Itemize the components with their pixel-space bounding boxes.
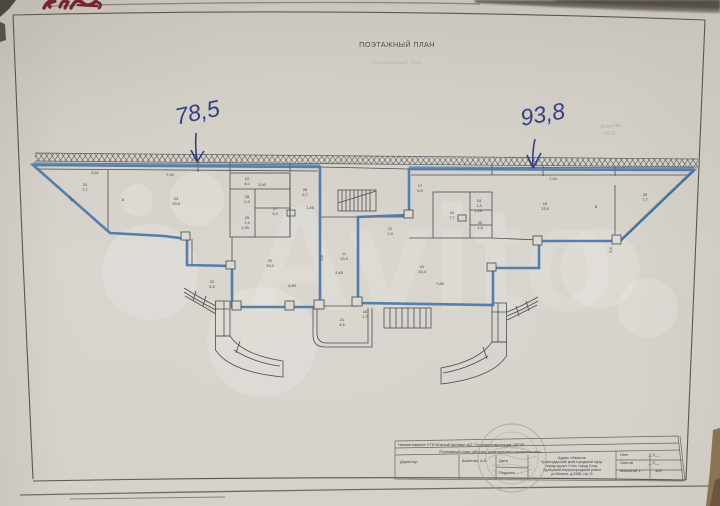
svg-text:1,4: 1,4 <box>477 225 483 230</box>
svg-text:13,9: 13,9 <box>172 201 181 206</box>
svg-text:5,9: 5,9 <box>417 188 423 193</box>
svg-text:Директор: Директор <box>400 459 418 464</box>
svg-text:100: 100 <box>655 468 662 473</box>
svg-text:1,39: 1,39 <box>241 225 250 230</box>
svg-text:1,3: 1,3 <box>244 199 250 204</box>
svg-text:Avito: Avito <box>245 174 614 342</box>
svg-text:5,8: 5,8 <box>319 254 324 260</box>
svg-text:Лист: Лист <box>620 452 629 457</box>
svg-text:19,2: 19,2 <box>266 263 275 268</box>
svg-text:2 (цокольный) этаж: 2 (цокольный) этаж <box>372 59 422 66</box>
svg-text:__3__: __3__ <box>647 452 660 457</box>
svg-text:Этаж №к: Этаж №к <box>600 123 622 130</box>
svg-text:01-11: 01-11 <box>604 130 617 137</box>
svg-text:3,3: 3,3 <box>272 211 278 216</box>
svg-text:7,34: 7,34 <box>549 176 558 181</box>
svg-text:2,49: 2,49 <box>335 270 344 275</box>
svg-text:__3__: __3__ <box>647 460 660 465</box>
svg-text:1,9: 1,9 <box>387 231 393 236</box>
svg-text:7,7: 7,7 <box>642 197 648 202</box>
svg-text:13,3: 13,3 <box>340 256 349 261</box>
svg-text:Наименование УТИ Южный филиал: Наименование УТИ Южный филиал АО "Госинв… <box>398 442 525 447</box>
svg-text:Калетник А.В.: Калетник А.В. <box>462 458 488 463</box>
svg-text:4,90: 4,90 <box>288 283 297 288</box>
svg-text:7,34: 7,34 <box>166 172 175 177</box>
svg-text:ПОЭТАЖНЫЙ ПЛАН: ПОЭТАЖНЫЙ ПЛАН <box>359 40 435 49</box>
svg-text:Дата: Дата <box>499 458 509 463</box>
svg-text:7,7: 7,7 <box>82 187 88 192</box>
svg-text:10,4: 10,4 <box>418 269 427 274</box>
svg-text:5,4: 5,4 <box>209 284 215 289</box>
svg-text:1,7: 1,7 <box>362 314 368 319</box>
svg-text:3,92: 3,92 <box>91 170 100 175</box>
svg-text:3,90: 3,90 <box>258 182 267 187</box>
svg-text:Масштаб 1:: Масштаб 1: <box>620 468 642 473</box>
svg-text:13,9: 13,9 <box>541 206 550 211</box>
svg-text:7,7: 7,7 <box>449 215 455 220</box>
svg-text:5,8: 5,8 <box>608 246 613 252</box>
svg-text:1,26: 1,26 <box>474 208 483 213</box>
svg-text:5,7: 5,7 <box>302 192 308 197</box>
svg-text:4,0: 4,0 <box>244 181 250 186</box>
svg-text:4,6: 4,6 <box>339 322 345 327</box>
svg-text:ул.Ленина, д.298Б стр.11: ул.Ленина, д.298Б стр.11 <box>551 472 593 476</box>
svg-text:1,46: 1,46 <box>306 205 315 210</box>
svg-text:7,86: 7,86 <box>436 281 445 286</box>
svg-text:Листов: Листов <box>620 460 633 465</box>
